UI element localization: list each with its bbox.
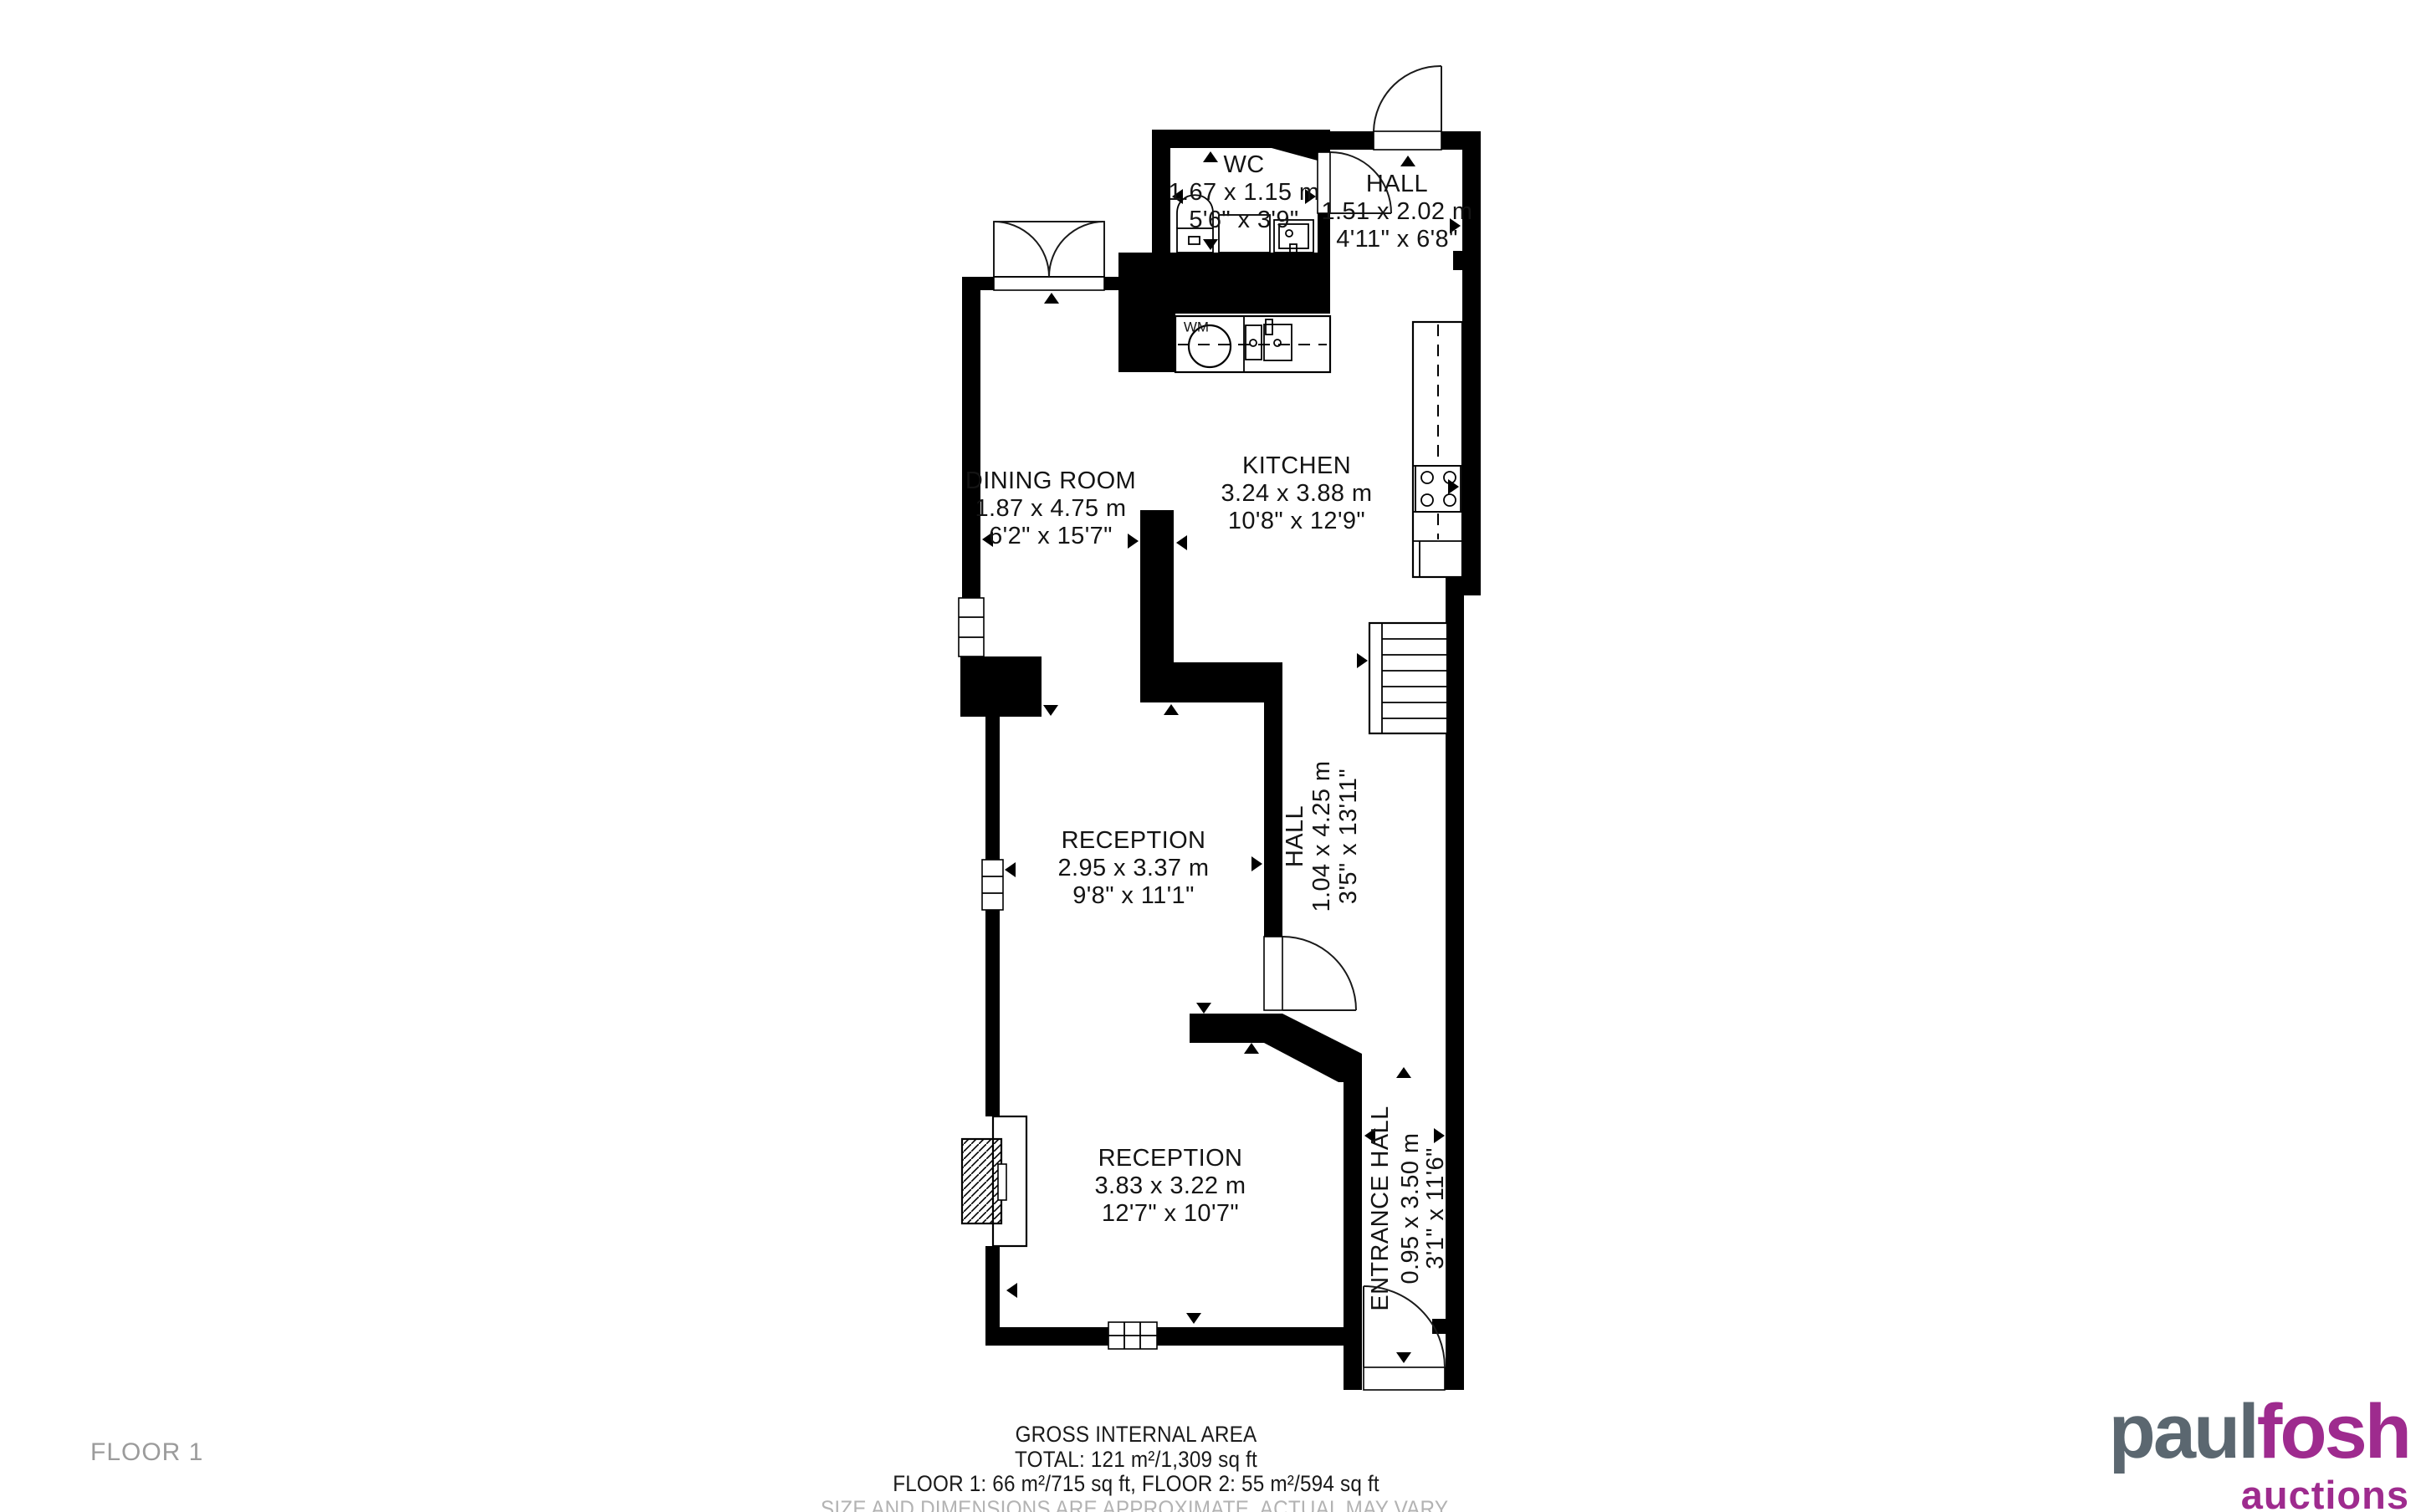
svg-text:1.04 x 4.25 m: 1.04 x 4.25 m bbox=[1308, 761, 1335, 912]
gross-internal-area: GROSS INTERNAL AREA TOTAL: 121 m²/1,309 … bbox=[114, 1423, 2158, 1512]
floorplan-drawing: WM bbox=[0, 0, 2421, 1512]
kitchen-counter-right bbox=[1413, 322, 1462, 577]
room-label-reception-2: RECEPTION 3.83 x 3.22 m 12'7" x 10'7" bbox=[1095, 1145, 1246, 1227]
stairs bbox=[1369, 623, 1447, 733]
svg-text:WM: WM bbox=[1184, 319, 1209, 335]
room-label-dining-room: DINING ROOM 1.87 x 4.75 m 6'2" x 15'7" bbox=[965, 467, 1136, 549]
front-entrance-door-top bbox=[1374, 66, 1441, 150]
svg-text:9'8" x 11'1": 9'8" x 11'1" bbox=[1072, 882, 1195, 909]
svg-text:HALL: HALL bbox=[1366, 171, 1428, 197]
gross-area-floors: FLOOR 1: 66 m²/715 sq ft, FLOOR 2: 55 m²… bbox=[114, 1472, 2158, 1497]
logo-fosh: fosh bbox=[2257, 1389, 2409, 1474]
svg-text:KITCHEN: KITCHEN bbox=[1242, 452, 1351, 479]
svg-text:3.83 x 3.22 m: 3.83 x 3.22 m bbox=[1095, 1172, 1246, 1199]
logo-wordmark: paulfosh bbox=[2109, 1393, 2409, 1470]
gross-area-disclaimer: SIZE AND DIMENSIONS ARE APPROXIMATE, ACT… bbox=[114, 1497, 2158, 1512]
reception-window bbox=[982, 860, 1003, 910]
svg-text:0.95 x 3.50 m: 0.95 x 3.50 m bbox=[1397, 1133, 1424, 1285]
svg-text:3.24 x 3.88 m: 3.24 x 3.88 m bbox=[1221, 480, 1373, 507]
room-label-kitchen: KITCHEN 3.24 x 3.88 m 10'8" x 12'9" bbox=[1221, 452, 1373, 534]
svg-text:4'11" x 6'8": 4'11" x 6'8" bbox=[1336, 226, 1458, 253]
room-label-hall-stairs: HALL 1.04 x 4.25 m 3'5" x 13'11" bbox=[1282, 761, 1362, 912]
svg-text:DINING ROOM: DINING ROOM bbox=[965, 467, 1136, 494]
svg-text:RECEPTION: RECEPTION bbox=[1062, 827, 1206, 854]
fireplace bbox=[962, 1116, 1026, 1246]
svg-text:12'7" x 10'7": 12'7" x 10'7" bbox=[1102, 1200, 1239, 1227]
svg-text:RECEPTION: RECEPTION bbox=[1098, 1145, 1243, 1172]
svg-text:ENTRANCE HALL: ENTRANCE HALL bbox=[1367, 1106, 1394, 1310]
room-label-wc: WC 1.67 x 1.15 m 5'6" x 3'9" bbox=[1169, 151, 1320, 233]
logo-auctions: auctions bbox=[2109, 1475, 2409, 1512]
svg-text:1.51 x 2.02 m: 1.51 x 2.02 m bbox=[1322, 198, 1473, 225]
svg-text:10'8" x 12'9": 10'8" x 12'9" bbox=[1228, 508, 1365, 534]
gross-area-total: TOTAL: 121 m²/1,309 sq ft bbox=[114, 1448, 2158, 1473]
room-label-reception-1: RECEPTION 2.95 x 3.37 m 9'8" x 11'1" bbox=[1058, 827, 1210, 909]
bottom-window bbox=[1108, 1322, 1157, 1349]
svg-text:5'6" x 3'9": 5'6" x 3'9" bbox=[1189, 207, 1298, 233]
room-label-hall-top: HALL 1.51 x 2.02 m 4'11" x 6'8" bbox=[1322, 171, 1473, 253]
svg-text:6'2" x 15'7": 6'2" x 15'7" bbox=[989, 523, 1113, 549]
dining-window bbox=[959, 598, 984, 656]
svg-text:HALL: HALL bbox=[1282, 805, 1308, 867]
hall-door bbox=[1264, 937, 1356, 1010]
brand-logo: paulfosh auctions bbox=[2109, 1393, 2409, 1512]
svg-text:1.67 x 1.15 m: 1.67 x 1.15 m bbox=[1169, 179, 1320, 206]
svg-text:3'1" x 11'6": 3'1" x 11'6" bbox=[1422, 1147, 1449, 1269]
kitchen-fixtures: WM bbox=[1175, 316, 1462, 577]
svg-text:3'5" x 13'11": 3'5" x 13'11" bbox=[1335, 769, 1362, 904]
svg-text:2.95 x 3.37 m: 2.95 x 3.37 m bbox=[1058, 855, 1210, 881]
french-doors bbox=[994, 222, 1104, 290]
svg-text:WC: WC bbox=[1223, 151, 1264, 178]
floorplan-page: WM bbox=[0, 0, 2421, 1512]
svg-text:1.87 x 4.75 m: 1.87 x 4.75 m bbox=[975, 495, 1127, 522]
gross-area-title: GROSS INTERNAL AREA bbox=[114, 1423, 2158, 1448]
logo-paul: paul bbox=[2109, 1389, 2257, 1474]
